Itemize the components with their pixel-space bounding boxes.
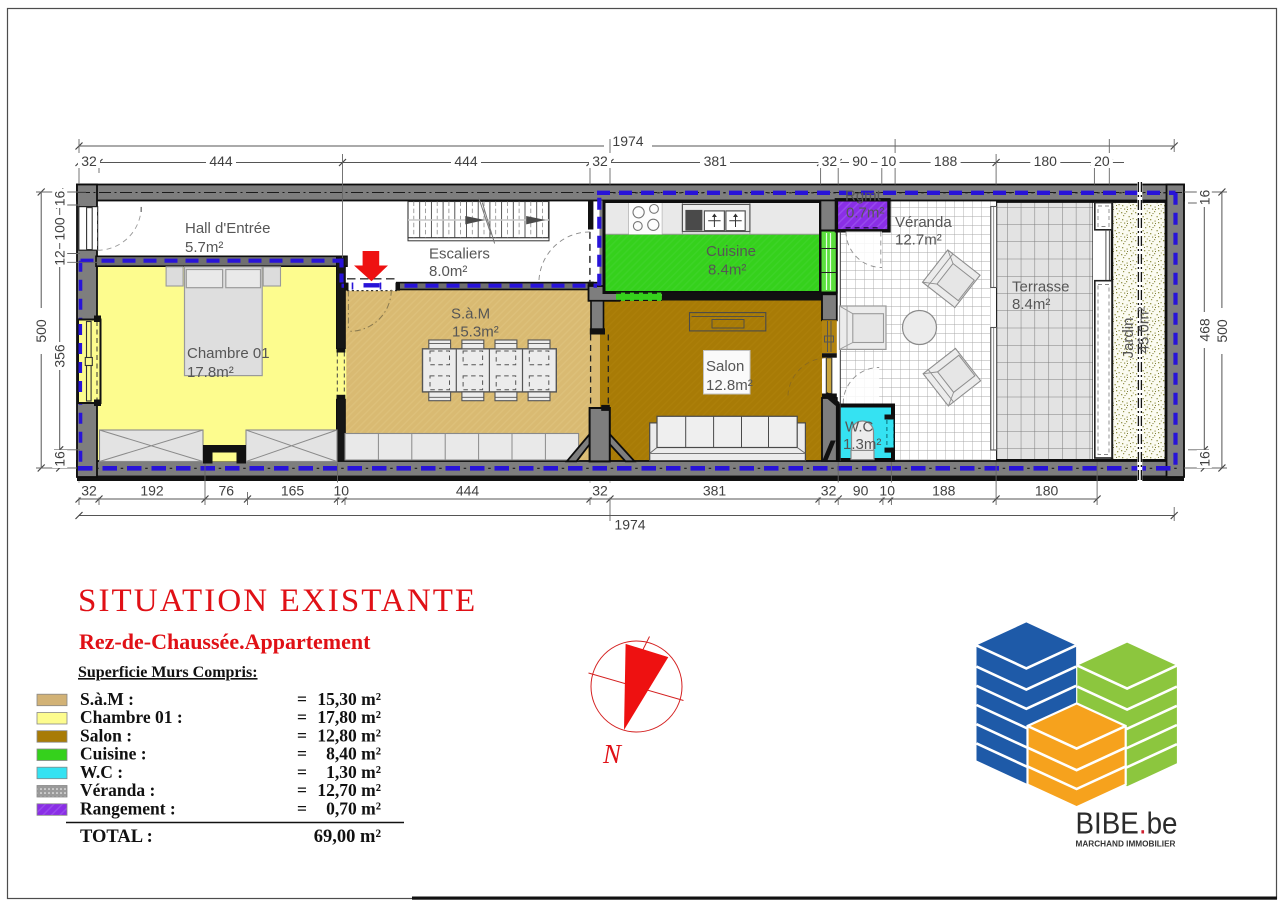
svg-text:=: = [297,780,307,800]
svg-text:1,30 m²: 1,30 m² [326,762,381,782]
svg-text:S.à.M: S.à.M [451,306,490,323]
svg-text:Véranda: Véranda [895,214,952,231]
svg-text:BIBE.be: BIBE.be [1076,807,1178,841]
svg-text:180: 180 [1035,483,1059,499]
svg-text:12.8m²: 12.8m² [706,377,753,394]
svg-text:12.7m²: 12.7m² [895,232,942,249]
svg-text:381: 381 [704,153,728,169]
svg-text:381: 381 [703,483,727,499]
svg-text:0,70 m²: 0,70 m² [326,799,381,819]
svg-text:76: 76 [219,483,235,499]
svg-text:8.0m²: 8.0m² [429,263,467,280]
svg-text:0.7m²: 0.7m² [846,205,884,222]
svg-text:Chambre 01 :: Chambre 01 : [80,707,183,727]
svg-text:MARCHAND IMMOBILIER: MARCHAND IMMOBILIER [1076,839,1177,849]
svg-text:165: 165 [281,483,305,499]
svg-text:17.8m²: 17.8m² [187,364,234,381]
svg-text:8,40 m²: 8,40 m² [326,744,381,764]
svg-text:=: = [297,799,307,819]
svg-text:444: 444 [209,153,233,169]
svg-text:188: 188 [934,153,958,169]
svg-text:N: N [602,739,623,769]
svg-text:12,70 m²: 12,70 m² [317,780,381,800]
svg-text:Rez-de-Chaussée.Appartement: Rez-de-Chaussée.Appartement [79,629,371,654]
svg-text:16: 16 [1196,451,1212,467]
svg-text:32: 32 [81,483,97,499]
svg-text:69,00 m²: 69,00 m² [314,827,382,847]
svg-text:Rangement :: Rangement : [80,799,176,819]
svg-text:Véranda :: Véranda : [80,780,155,800]
svg-text:10: 10 [334,483,350,499]
svg-text:1974: 1974 [614,517,645,533]
svg-text:32: 32 [592,153,608,169]
svg-text:Chambre 01: Chambre 01 [187,345,270,362]
svg-text:S.à.M :: S.à.M : [80,689,134,709]
svg-text:Cuisine: Cuisine [706,243,756,260]
svg-text:188: 188 [932,483,956,499]
svg-text:=: = [297,726,307,746]
svg-text:468: 468 [1196,318,1212,342]
svg-text:45.0m²: 45.0m² [1136,307,1153,354]
svg-text:356: 356 [52,344,68,368]
svg-text:1974: 1974 [612,133,643,149]
svg-text:5.7m²: 5.7m² [185,239,223,256]
svg-text:=: = [297,744,307,764]
svg-text:W.C: W.C [845,419,873,436]
svg-text:32: 32 [821,483,837,499]
svg-text:20: 20 [1094,153,1110,169]
svg-text:10: 10 [881,153,897,169]
svg-text:=: = [297,689,307,709]
svg-text:8.4m²: 8.4m² [1012,296,1050,313]
svg-text:TOTAL :: TOTAL : [80,827,153,847]
svg-text:32: 32 [822,153,838,169]
svg-text:192: 192 [140,483,164,499]
svg-text:500: 500 [1214,319,1230,343]
svg-text:444: 444 [456,483,480,499]
svg-text:180: 180 [1034,153,1058,169]
svg-text:=: = [297,707,307,727]
svg-text:Terrasse: Terrasse [1012,279,1070,296]
svg-text:15.3m²: 15.3m² [452,324,499,341]
svg-text:17,80 m²: 17,80 m² [317,707,381,727]
svg-text:Cuisine :: Cuisine : [80,744,147,764]
svg-text:Jardin: Jardin [1120,318,1137,359]
svg-text:32: 32 [592,483,608,499]
svg-text:500: 500 [33,319,49,343]
svg-text:Hall d'Entrée: Hall d'Entrée [185,220,270,237]
svg-text:90: 90 [853,483,869,499]
svg-text:16: 16 [52,191,68,207]
svg-text:15,30 m²: 15,30 m² [317,689,381,709]
svg-text:Salon: Salon [706,358,744,375]
svg-text:W.C :: W.C : [80,762,123,782]
svg-text:12,80 m²: 12,80 m² [317,726,381,746]
svg-text:1.3m²: 1.3m² [843,436,881,453]
svg-text:444: 444 [454,153,478,169]
svg-text:90: 90 [852,153,868,169]
svg-text:=: = [297,762,307,782]
svg-text:8.4m²: 8.4m² [708,262,746,279]
svg-text:32: 32 [81,153,97,169]
svg-text:SITUATION EXISTANTE: SITUATION EXISTANTE [78,583,477,619]
svg-text:Rgmt: Rgmt [845,188,882,205]
svg-text:16: 16 [52,451,68,467]
svg-text:100: 100 [52,217,68,241]
svg-text:16: 16 [1196,190,1212,206]
svg-text:12: 12 [52,250,68,266]
svg-text:Salon :: Salon : [80,726,132,746]
svg-text:Superficie Murs Compris:: Superficie Murs Compris: [78,664,258,681]
svg-text:10: 10 [879,483,895,499]
svg-text:Escaliers: Escaliers [429,246,490,263]
